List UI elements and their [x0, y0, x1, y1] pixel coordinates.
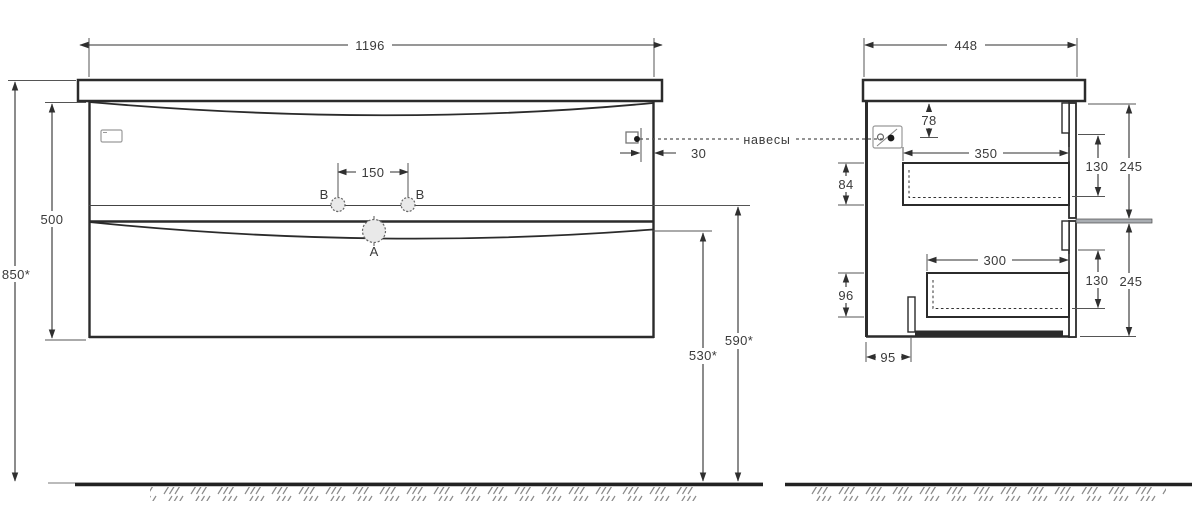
side-view [863, 80, 1152, 337]
dim-245-upper: 245 [1120, 159, 1143, 174]
side-bottom-notch [908, 297, 915, 332]
hole-label-a: A [370, 244, 379, 259]
side-upper-front-handle-recess [1062, 103, 1069, 133]
hole-b-right [401, 198, 415, 212]
dim-150: 150 [362, 165, 385, 180]
ground-hatch-right [810, 487, 1166, 501]
front-view [78, 80, 662, 338]
dim-300: 300 [984, 253, 1007, 268]
dim-245-lower: 245 [1120, 274, 1143, 289]
dim-84: 84 [838, 177, 853, 192]
drawing-canvas: 1196 448 500 850* 150 30 590* 530* 78 84… [0, 0, 1200, 511]
dim-30: 30 [691, 146, 706, 161]
dim-500: 500 [41, 212, 64, 227]
dim-448: 448 [955, 38, 978, 53]
side-lower-drawer-box [927, 273, 1069, 317]
hole-b-left [331, 198, 345, 212]
side-bottom-panel [915, 331, 1063, 337]
dim-95: 95 [880, 350, 895, 365]
technical-drawing-vanity: 1196 448 500 850* 150 30 590* 530* 78 84… [0, 0, 1200, 511]
hangers-label: навесы [743, 133, 790, 147]
dimension-lines [15, 45, 1129, 481]
front-upper-groove-curve [89, 102, 653, 115]
ground-hatch-left [150, 487, 702, 501]
dim-130-upper: 130 [1086, 159, 1109, 174]
dim-530: 530* [689, 348, 717, 363]
hole-label-b-right: B [416, 187, 425, 202]
dim-1196: 1196 [355, 38, 385, 53]
side-countertop [863, 80, 1085, 101]
dim-590: 590* [725, 333, 753, 348]
ground [48, 483, 1192, 501]
side-hanger-point [888, 135, 895, 142]
front-hanger-point [634, 136, 640, 142]
hole-label-b-left: B [320, 187, 329, 202]
front-countertop [78, 80, 662, 101]
side-front-gap-gray-line [1076, 219, 1152, 223]
side-lower-front-handle-recess [1062, 221, 1069, 250]
brand-logo-plate [101, 130, 122, 142]
dim-850: 850* [2, 267, 30, 282]
dim-78: 78 [921, 113, 936, 128]
dim-130-lower: 130 [1086, 273, 1109, 288]
dim-350: 350 [975, 146, 998, 161]
dim-96: 96 [838, 288, 853, 303]
side-upper-drawer-front [1069, 103, 1076, 218]
hole-a [363, 220, 386, 243]
side-upper-drawer-box [903, 163, 1069, 205]
side-lower-drawer-front [1069, 221, 1076, 337]
